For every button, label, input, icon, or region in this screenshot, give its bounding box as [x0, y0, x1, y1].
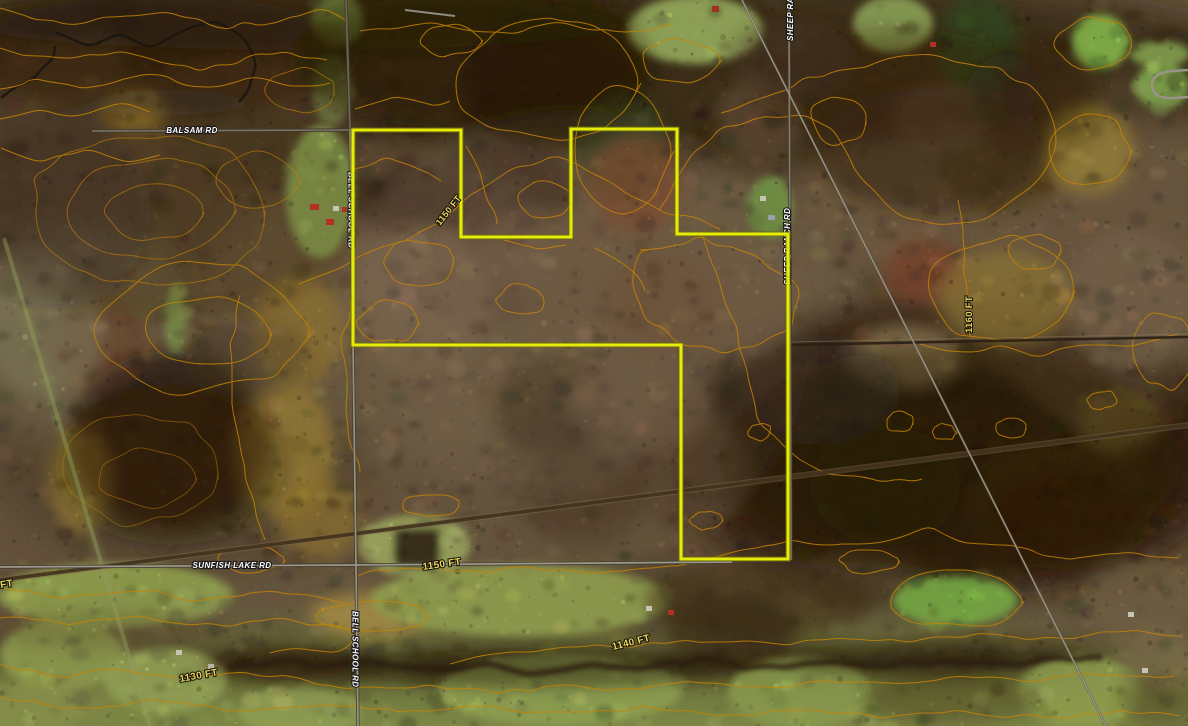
svg-text:BALSAM RD: BALSAM RD: [166, 126, 218, 135]
svg-text:1160 FT: 1160 FT: [964, 296, 975, 333]
svg-text:SUNFISH LAKE RD: SUNFISH LAKE RD: [193, 561, 272, 570]
svg-text:SHEEP RANCH RD: SHEEP RANCH RD: [786, 0, 795, 41]
svg-text:BELL SCHOOL RD: BELL SCHOOL RD: [351, 611, 360, 687]
